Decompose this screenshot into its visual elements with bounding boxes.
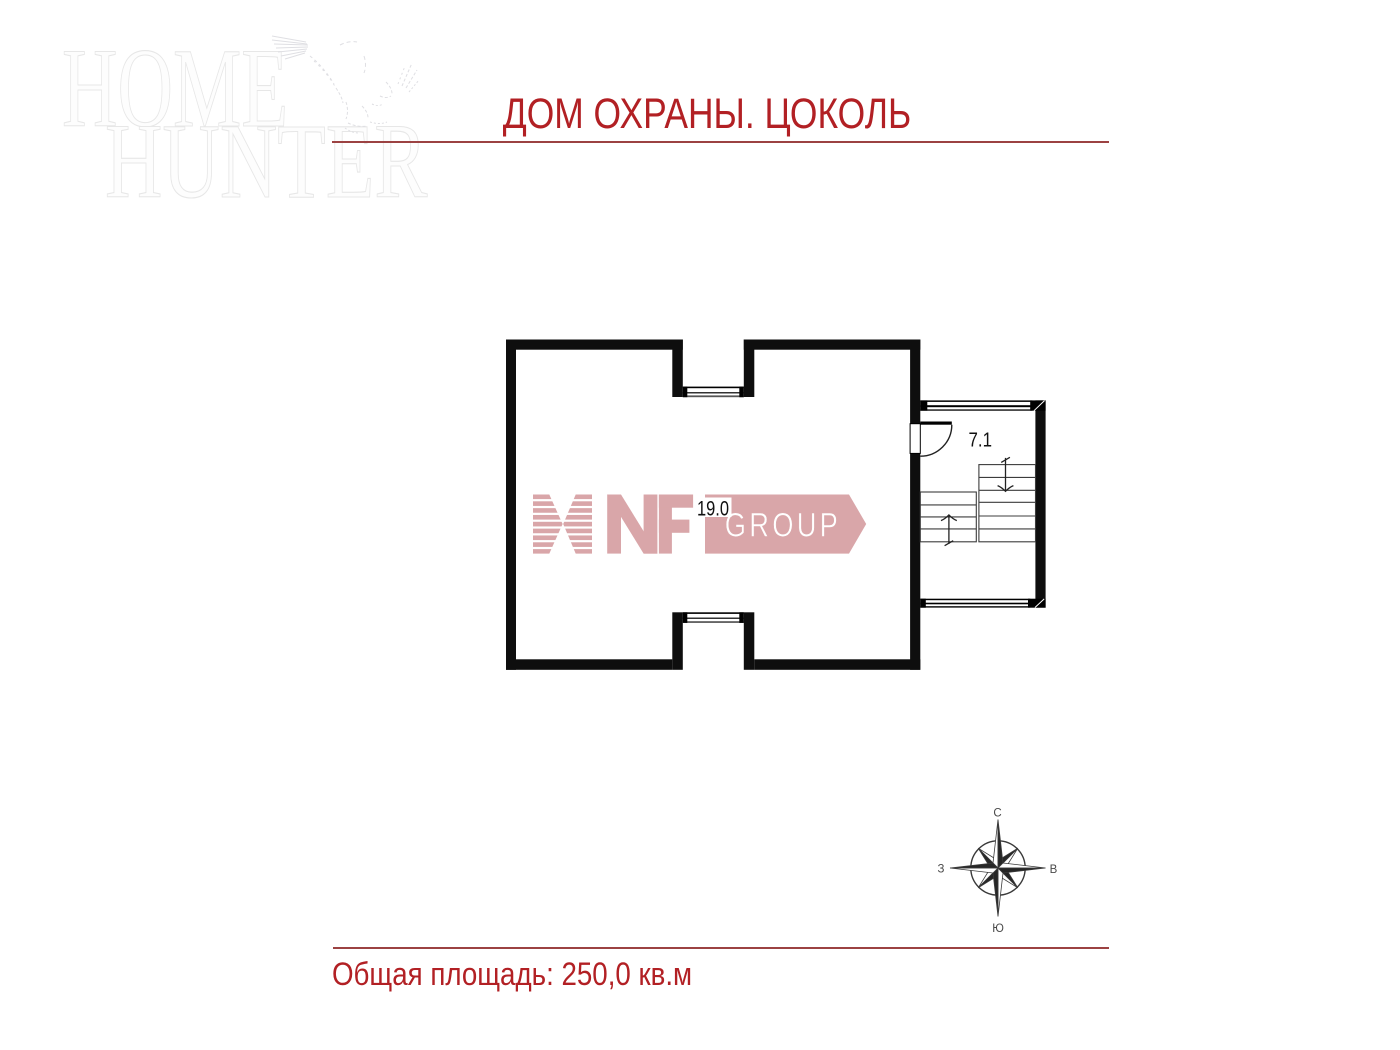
svg-text:GROUP: GROUP bbox=[725, 507, 841, 545]
svg-text:В: В bbox=[1050, 864, 1058, 876]
svg-text:19.0: 19.0 bbox=[697, 496, 729, 520]
svg-text:Ю: Ю bbox=[992, 923, 1004, 935]
svg-text:7.1: 7.1 bbox=[969, 429, 993, 451]
svg-text:З: З bbox=[938, 864, 945, 876]
svg-text:С: С bbox=[993, 808, 1001, 820]
